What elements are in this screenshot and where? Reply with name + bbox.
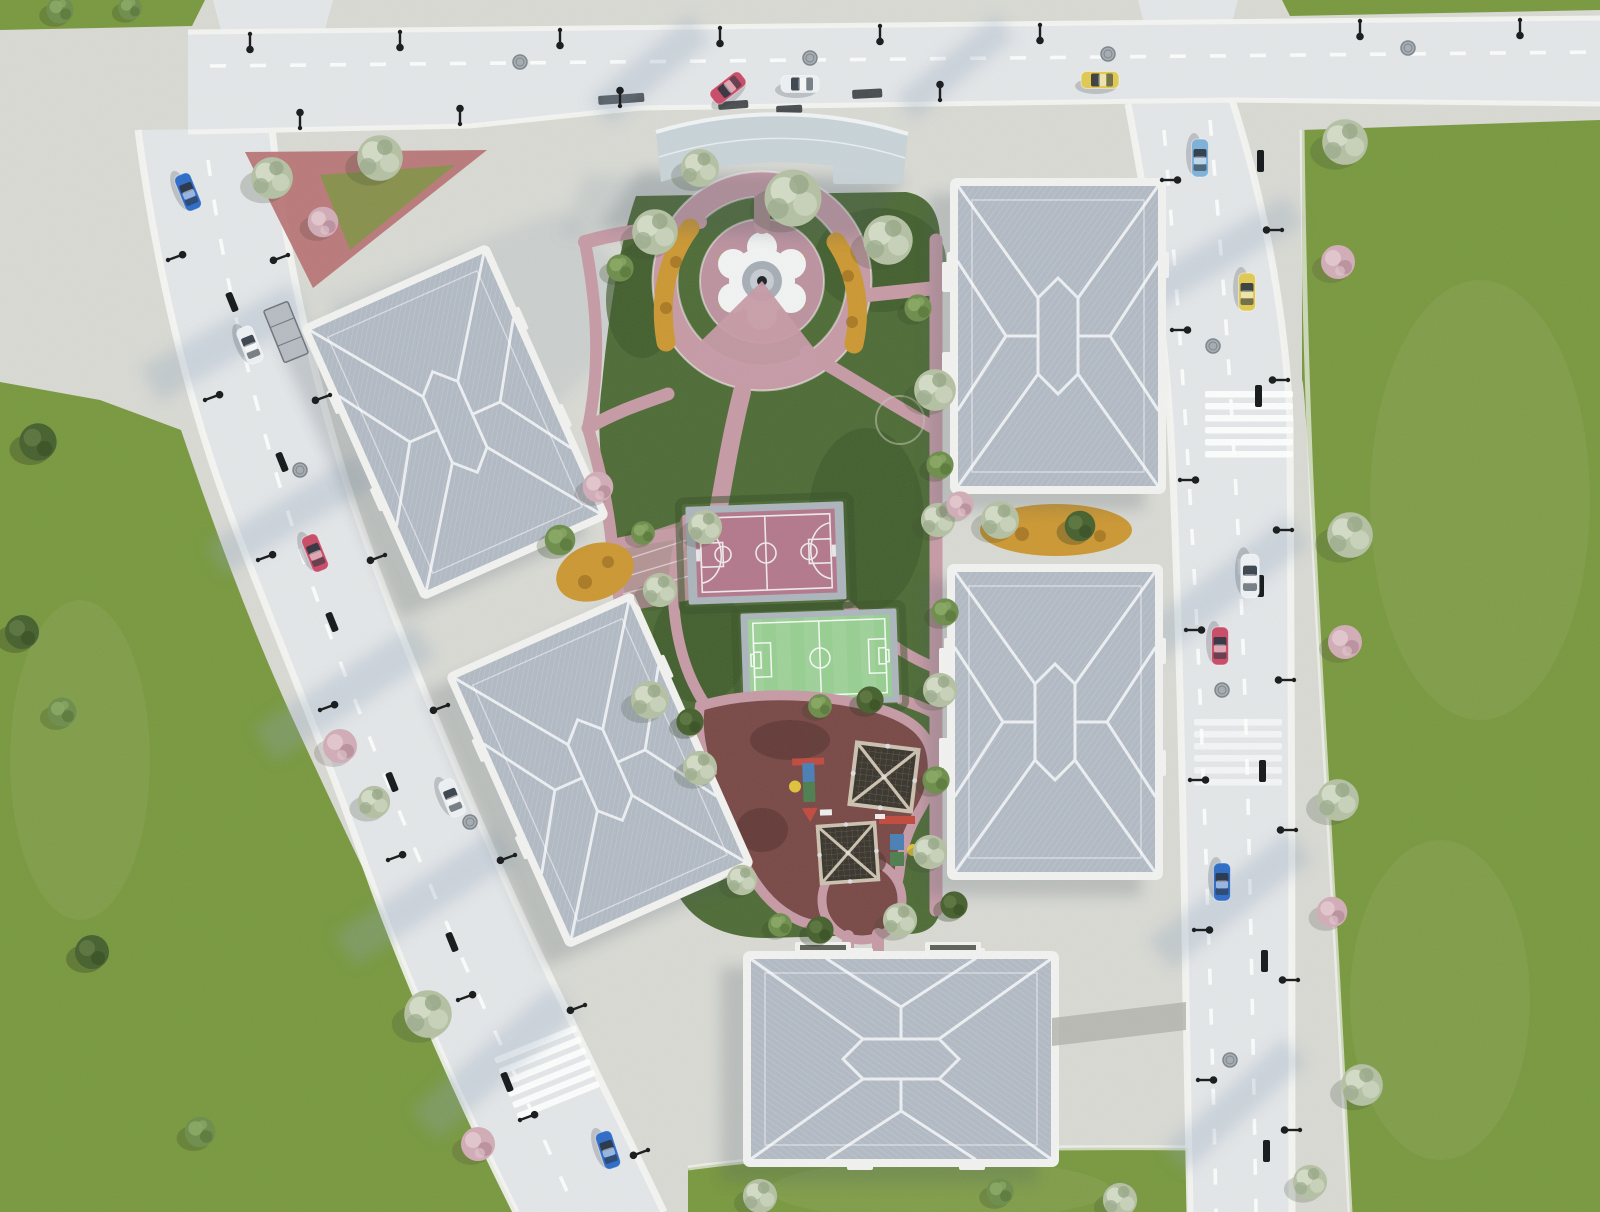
car-yellow-top-road [1075,72,1119,95]
car-yellow-right-road [1233,267,1256,311]
building-block-d [944,564,1166,880]
net-climber-1 [847,740,922,815]
car-red-right-road [1206,621,1229,665]
aerial-site-plan: Aerial site plan rendering of a resident… [0,0,1600,1212]
car-white-top-road [775,76,819,99]
lawn-top-left-strip [0,0,205,30]
van-white-right-road [1235,547,1259,598]
top-road-stub-left [213,0,333,42]
building-block-e [743,948,1059,1170]
top-road-stub-right [1138,0,1238,32]
car-skyblue-right-road [1186,133,1209,177]
building-block-c [947,178,1169,494]
site-plan-stage: Aerial site plan rendering of a resident… [0,0,1600,1212]
net-climber-2 [815,820,881,886]
car-blue-right-road [1208,857,1231,901]
